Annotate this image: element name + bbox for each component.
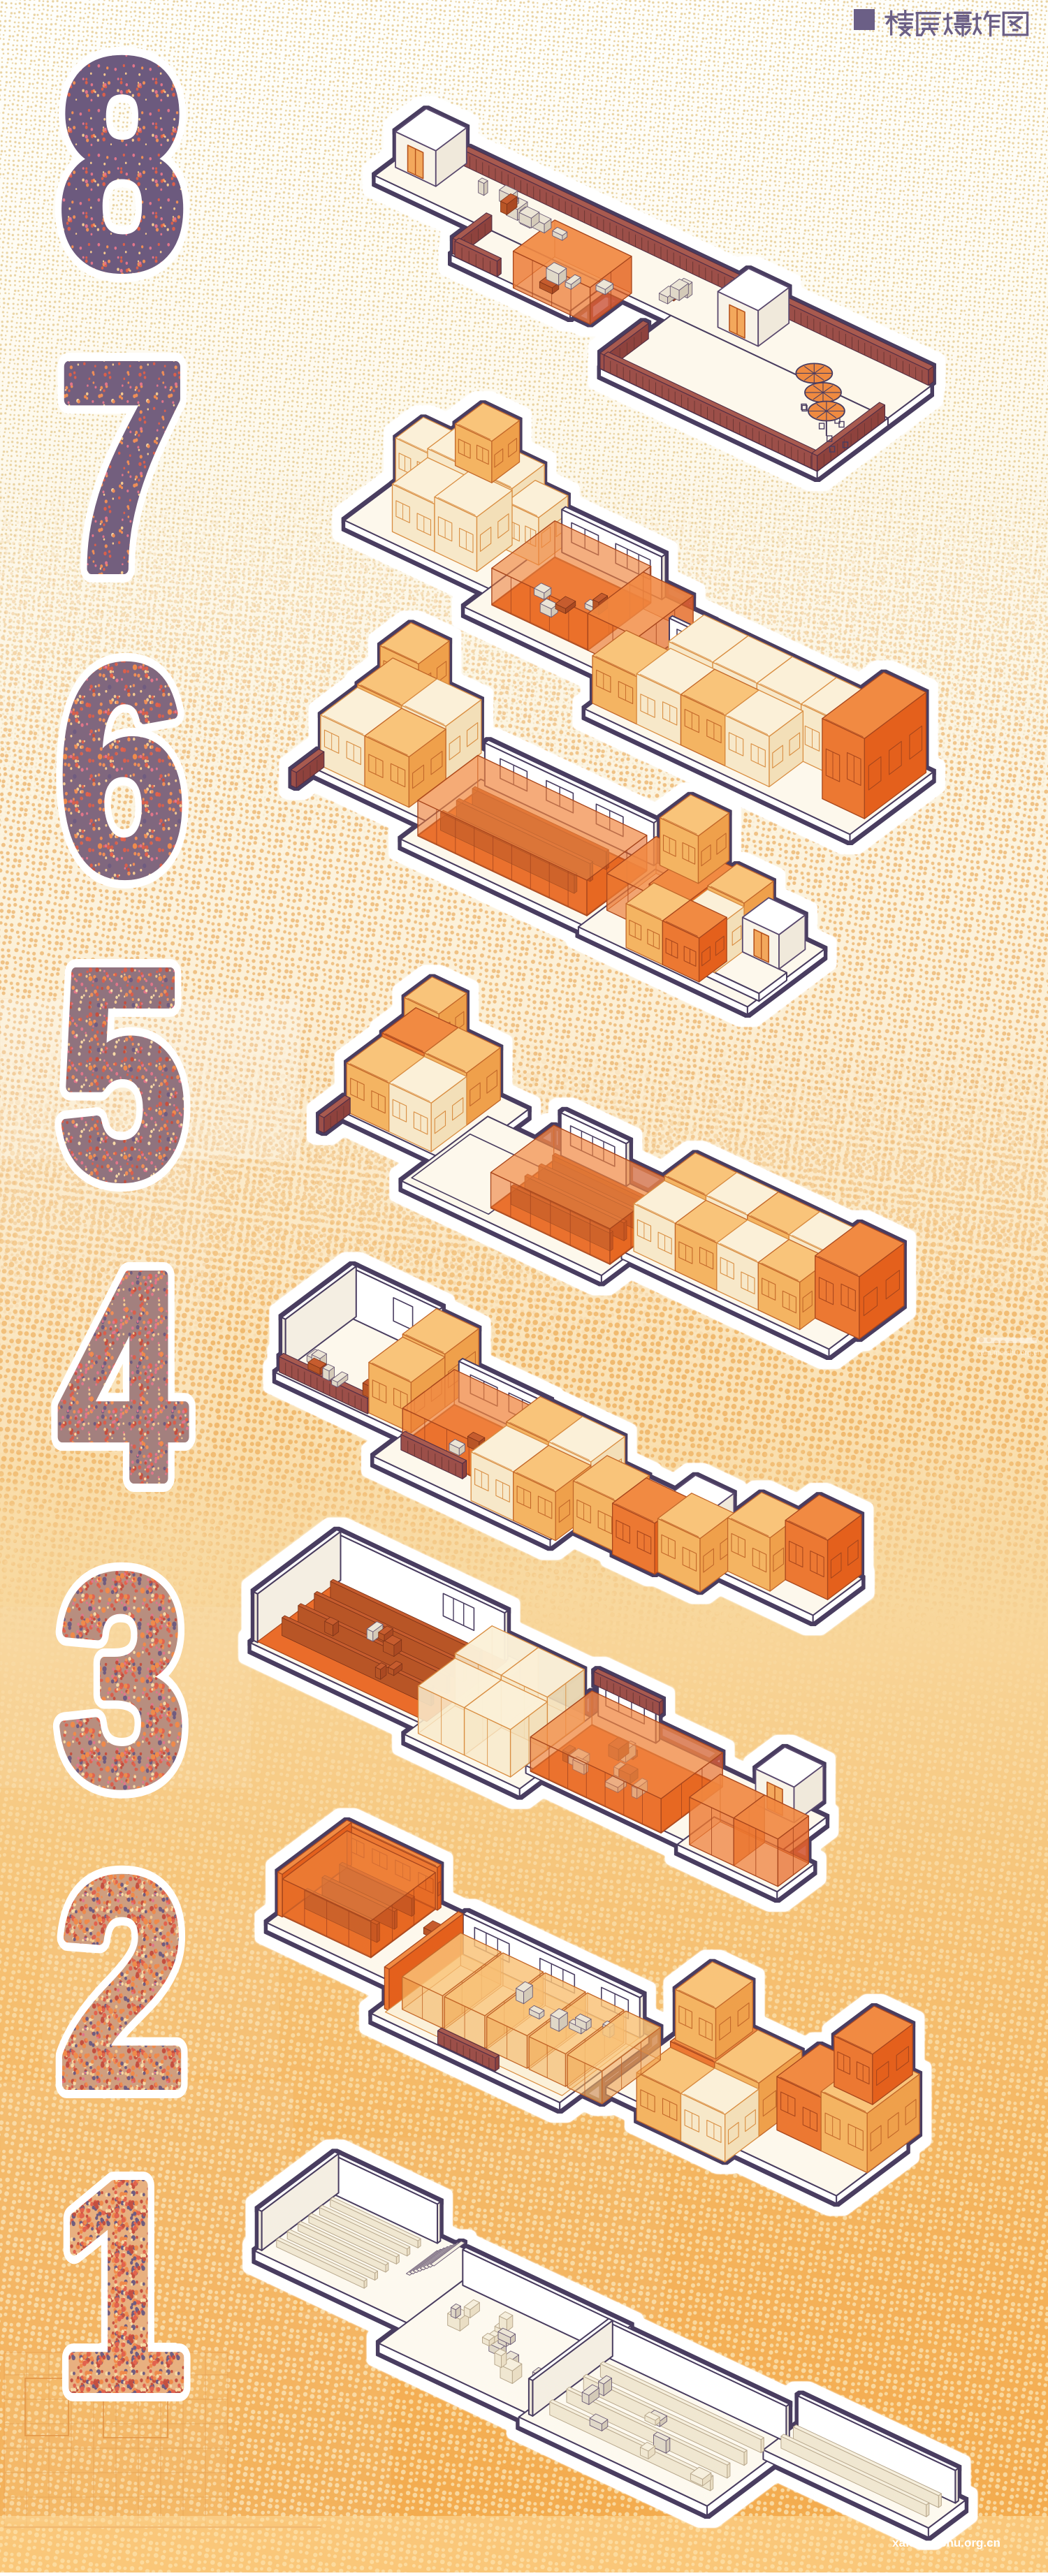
svg-text:3: 3 (59, 1516, 186, 1843)
svg-text:2: 2 (59, 1819, 186, 2146)
svg-text:xafa.meishu.org.cn: xafa.meishu.org.cn (977, 1349, 1042, 1357)
svg-text:4: 4 (59, 1213, 187, 1540)
svg-text:7: 7 (59, 303, 186, 631)
svg-text:1: 1 (59, 2122, 186, 2450)
svg-text:6: 6 (59, 606, 186, 934)
svg-text:xafa.meishu.org.cn: xafa.meishu.org.cn (892, 2536, 1000, 2549)
svg-text:5: 5 (59, 909, 186, 1237)
svg-text:8: 8 (59, 0, 186, 328)
